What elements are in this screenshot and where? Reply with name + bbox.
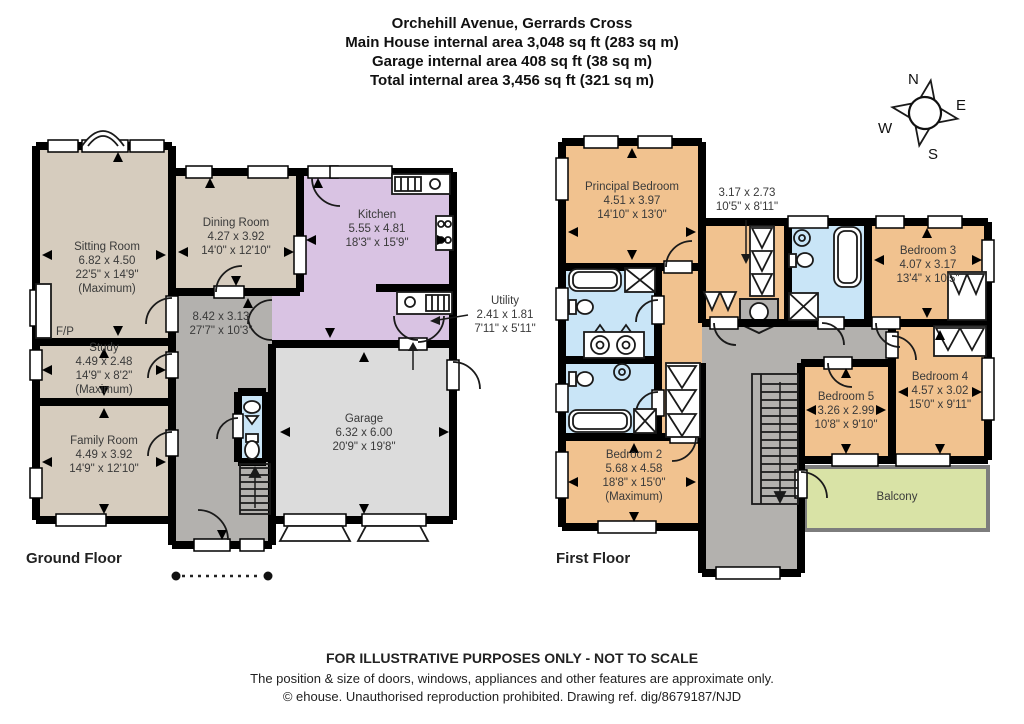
family-room-label: Family Room 4.49 x 3.92 14'9" x 12'10"	[69, 434, 138, 476]
dressing-label: 3.17 x 2.73 10'5" x 8'11"	[716, 186, 778, 214]
utility-label: Utility 2.41 x 1.81 7'11" x 5'11"	[474, 294, 535, 336]
dining-room-label: Dining Room 4.27 x 3.92 14'0" x 12'10"	[201, 216, 270, 258]
garage-label: Garage 6.32 x 6.00 20'9" x 19'8"	[332, 412, 395, 454]
floorplan-canvas: N E W S Orchehill Avenue, Gerrards Cross…	[0, 0, 1024, 724]
footer-disclaimer: FOR ILLUSTRATIVE PURPOSES ONLY - NOT TO …	[0, 650, 1024, 666]
garage-area-line: Garage internal area 408 sq ft (38 sq m)	[0, 52, 1024, 71]
kitchen-label: Kitchen 5.55 x 4.81 18'3" x 15'9"	[345, 208, 408, 250]
footer-approximate-note: The position & size of doors, windows, a…	[0, 671, 1024, 686]
page-title: Orchehill Avenue, Gerrards Cross	[0, 14, 1024, 33]
first-floor-title: First Floor	[556, 550, 630, 567]
ground-floor-title: Ground Floor	[26, 550, 122, 567]
bedroom4-label: Bedroom 4 4.57 x 3.02 15'0" x 9'11"	[909, 370, 971, 412]
bedroom3-label: Bedroom 3 4.07 x 3.17 13'4" x 10'5"	[896, 244, 959, 286]
sitting-room-label: Sitting Room 6.82 x 4.50 22'5" x 14'9" (…	[74, 240, 140, 296]
hall-label: 8.42 x 3.13 27'7" x 10'3"	[189, 310, 252, 338]
study-label: Study 4.49 x 2.48 14'9" x 8'2" (Maximum)	[75, 341, 133, 397]
text-layer: Orchehill Avenue, Gerrards Cross Main Ho…	[0, 0, 1024, 724]
main-house-area: Main House internal area 3,048 sq ft (28…	[0, 33, 1024, 52]
principal-bedroom-label: Principal Bedroom 4.51 x 3.97 14'10" x 1…	[585, 180, 679, 222]
title-block: Orchehill Avenue, Gerrards Cross Main Ho…	[0, 14, 1024, 90]
bedroom5-label: Bedroom 5 3.26 x 2.99 10'8" x 9'10"	[814, 390, 877, 432]
total-area-line: Total internal area 3,456 sq ft (321 sq …	[0, 71, 1024, 90]
fireplace-label: F/P	[56, 325, 74, 339]
balcony-label: Balcony	[877, 490, 918, 504]
bedroom2-label: Bedroom 2 5.68 x 4.58 18'8" x 15'0" (Max…	[602, 448, 665, 504]
footer-copyright: © ehouse. Unauthorised reproduction proh…	[0, 689, 1024, 704]
